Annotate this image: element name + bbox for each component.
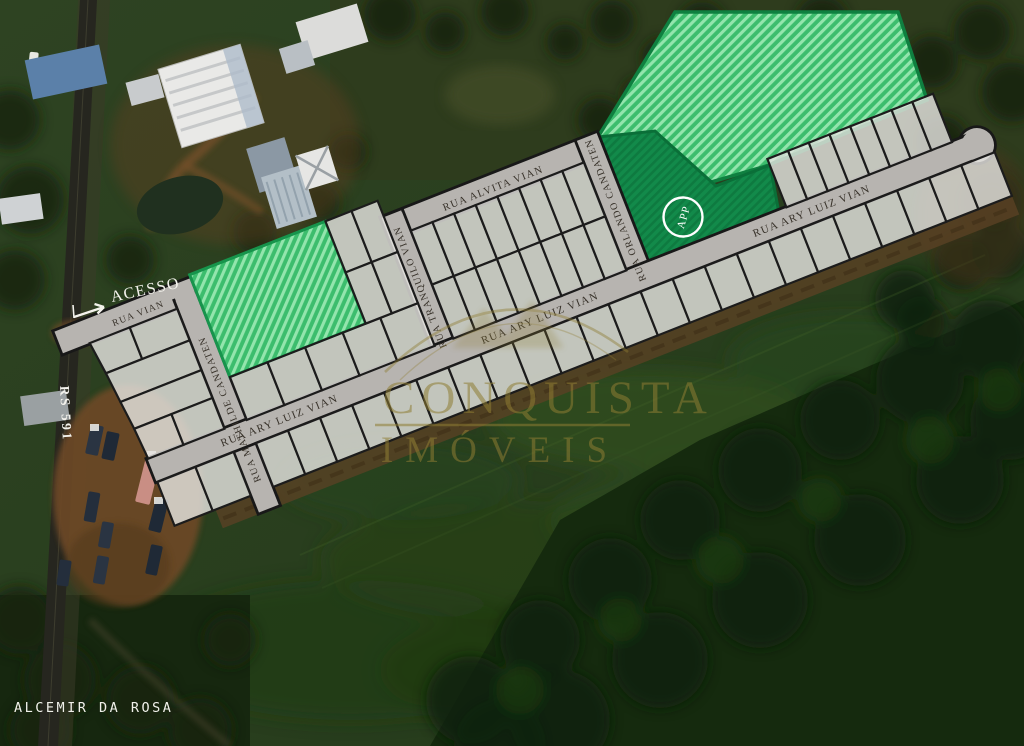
tree-canopy bbox=[954, 4, 1010, 60]
tree-canopy bbox=[106, 236, 154, 284]
tree-canopy bbox=[978, 368, 1022, 412]
tree-canopy bbox=[798, 478, 842, 522]
tree-canopy bbox=[425, 12, 465, 52]
tree-canopy bbox=[718, 428, 802, 512]
truck-cab bbox=[90, 424, 99, 431]
tree-canopy bbox=[496, 666, 544, 714]
tree-canopy bbox=[598, 598, 642, 642]
tree-canopy bbox=[800, 380, 880, 460]
tree-canopy bbox=[906, 416, 954, 464]
credit-label: ALCEMIR DA ROSA bbox=[14, 700, 173, 716]
highway-label: RS 591 bbox=[57, 385, 75, 442]
aerial-subdivision-map: RUA VIAN RUA MATHILDE CANDATEN RUA TRANQ… bbox=[0, 0, 1024, 746]
tree-canopy bbox=[696, 536, 744, 584]
tree-canopy bbox=[547, 24, 583, 60]
tree-canopy bbox=[876, 336, 964, 424]
tree-canopy bbox=[204, 614, 256, 666]
truck-cab bbox=[154, 497, 163, 504]
tree-canopy bbox=[590, 0, 634, 44]
watermark-brand: CONQUISTA bbox=[383, 372, 714, 424]
watermark-brand-suffix: IMÓVEIS bbox=[381, 429, 619, 471]
